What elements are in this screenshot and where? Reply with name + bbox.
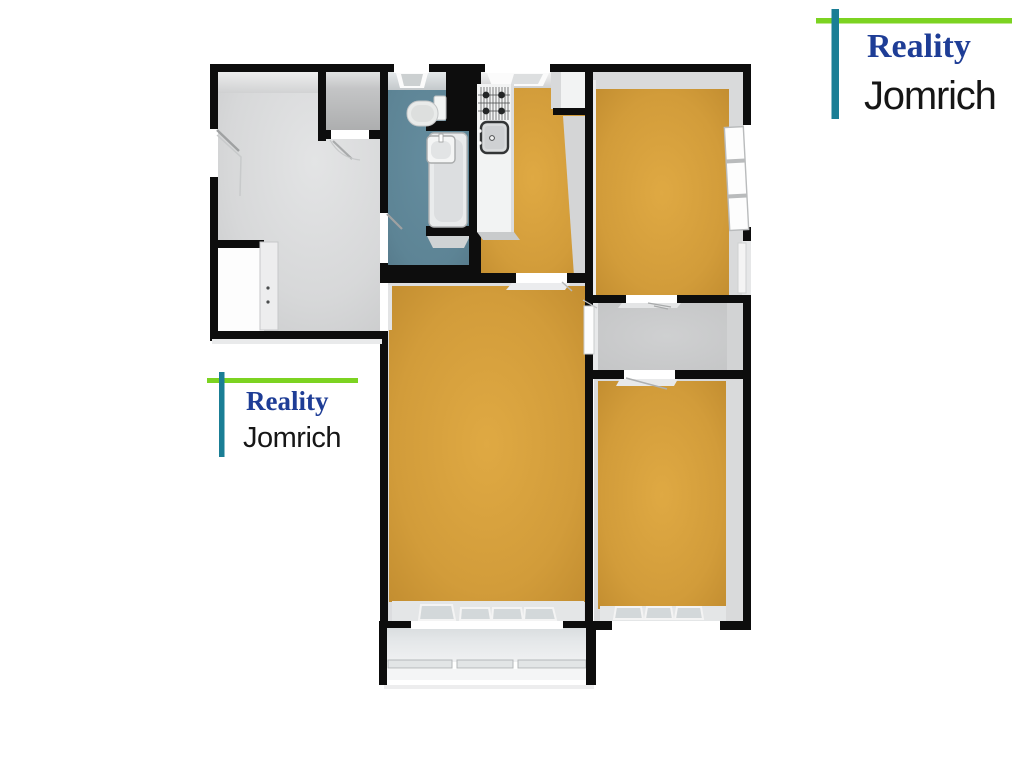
svg-text:Jomrich: Jomrich [243, 422, 341, 454]
svg-text:Reality: Reality [246, 386, 329, 416]
svg-text:Jomrich: Jomrich [864, 74, 996, 118]
svg-text:Reality: Reality [867, 28, 971, 65]
